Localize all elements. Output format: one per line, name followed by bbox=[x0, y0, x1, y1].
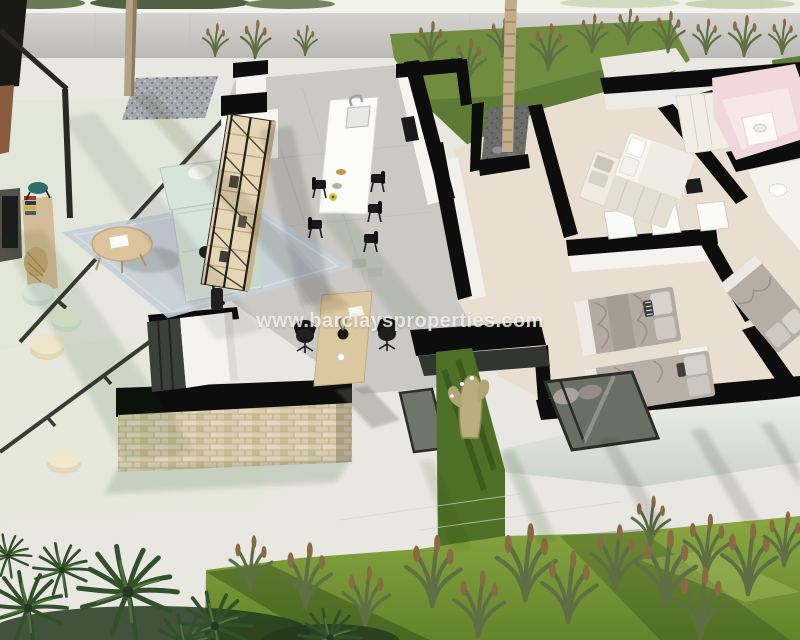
pillow bbox=[654, 316, 677, 341]
property-render: www.barclaysproperties.com bbox=[0, 0, 800, 640]
cup bbox=[338, 354, 345, 361]
pillow bbox=[687, 375, 712, 397]
floorplan-render-canvas bbox=[0, 0, 800, 640]
sink bbox=[346, 106, 370, 128]
bowl bbox=[336, 169, 346, 175]
sliding-door-glass bbox=[147, 318, 186, 392]
shower-tray bbox=[769, 184, 787, 196]
vase bbox=[338, 329, 349, 340]
pillow bbox=[683, 354, 708, 376]
plate bbox=[332, 183, 342, 189]
door bbox=[696, 201, 729, 231]
